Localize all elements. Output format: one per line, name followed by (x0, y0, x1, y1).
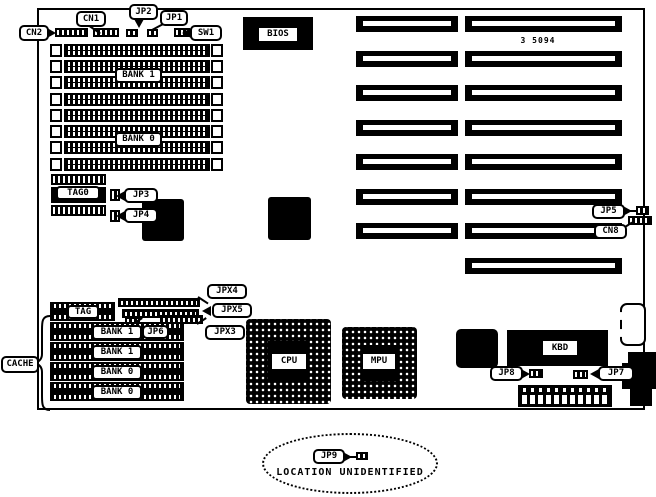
callout-cn2: CN2 (19, 25, 49, 41)
tag0-text: TAG0 (67, 189, 89, 198)
callout-jp2-label: JP2 (135, 8, 151, 17)
cn2-connector (55, 28, 88, 37)
simm-bank0-text: BANK 0 (122, 135, 155, 144)
expansion-slot-short (356, 189, 458, 205)
simm-clip (50, 141, 62, 154)
callout-jp5: JP5 (592, 204, 625, 219)
simm-clip (50, 158, 62, 171)
callout-cn1-label: CN1 (83, 15, 99, 24)
callout-jp7: JP7 (598, 366, 634, 381)
expansion-slot-long (465, 85, 622, 101)
callout-cn8-label: CN8 (602, 227, 618, 236)
callout-jp9-label: JP9 (321, 452, 337, 461)
callout-sw1: SW1 (190, 25, 222, 41)
motherboard-diagram: CN2 CN1 JP2 JP1 SW1 BANK 1 BANK 0 BIOS 3… (0, 0, 656, 497)
simm-clip (50, 60, 62, 73)
callout-cn1: CN1 (76, 11, 106, 27)
jp5-jumper (636, 206, 649, 215)
simm-socket (64, 93, 210, 106)
expansion-slot-long (465, 16, 622, 32)
cache-bank0-label-2: BANK 0 (92, 385, 142, 400)
callout-jpx4: JPX4 (207, 284, 247, 299)
callout-cache-label: CACHE (6, 360, 33, 369)
tag0-label: TAG0 (56, 186, 100, 200)
kbd-text: KBD (552, 344, 568, 353)
simm-clip (211, 93, 223, 106)
callout-sw1-label: SW1 (198, 29, 214, 38)
expansion-slot-short (356, 120, 458, 136)
jp9-jumper (356, 452, 368, 460)
callout-jp2: JP2 (129, 4, 158, 20)
simm-clip (211, 158, 223, 171)
expansion-slot-short (356, 85, 458, 101)
callout-jp4-label: JP4 (133, 211, 149, 220)
din-notch (617, 312, 625, 320)
expansion-slot-long (465, 258, 622, 274)
simm-bank0-label: BANK 0 (115, 132, 162, 147)
cache-tag-label: TAG (67, 305, 99, 319)
callout-jpx3: JPX3 (205, 325, 245, 340)
simm-clip (211, 76, 223, 89)
expansion-slot-short (356, 223, 458, 239)
asic-chip-center (268, 197, 311, 240)
simm-clip (211, 60, 223, 73)
simm-clip (211, 44, 223, 57)
mpu-text: MPU (371, 357, 387, 366)
expansion-slot-long (465, 120, 622, 136)
callout-jp6-label: JP6 (147, 328, 163, 337)
simm-socket (64, 109, 210, 122)
simm-bank1-text: BANK 1 (122, 71, 155, 80)
cache-bank1-label-1: BANK 1 (92, 325, 142, 340)
simm-clip (211, 141, 223, 154)
expansion-slot-short (356, 51, 458, 67)
jp2-jumper (126, 29, 138, 37)
callout-jp7-label: JP7 (608, 369, 624, 378)
jpx5-pointer (202, 306, 211, 316)
expansion-slot-long (465, 154, 622, 170)
simm-clip (50, 76, 62, 89)
expansion-slot-long (465, 189, 622, 205)
callout-jp9: JP9 (313, 449, 345, 464)
jpx4-header (118, 298, 200, 307)
simm-clip (211, 109, 223, 122)
kbd-label: KBD (543, 341, 577, 355)
callout-jp1-label: JP1 (166, 14, 182, 23)
callout-jp3: JP3 (124, 188, 158, 203)
cache-tag-text: TAG (75, 308, 91, 317)
din-connector-outline (620, 303, 646, 346)
expansion-slot-short (356, 154, 458, 170)
cpu-label: CPU (272, 354, 306, 369)
simm-socket (64, 158, 210, 171)
callout-cn2-label: CN2 (26, 29, 42, 38)
callout-jpx5: JPX5 (212, 303, 252, 318)
cache-bank1-label-2: BANK 1 (92, 345, 142, 360)
simm-clip (50, 109, 62, 122)
callout-jp8-label: JP8 (498, 369, 514, 378)
mpu-label: MPU (363, 354, 395, 369)
cpu-text: CPU (281, 357, 297, 366)
callout-jpx3-label: JPX3 (214, 328, 236, 337)
note-ellipse (262, 433, 438, 494)
bios-text: BIOS (267, 30, 289, 39)
callout-cache: CACHE (1, 356, 39, 373)
power-connector (518, 385, 612, 407)
jp7-jumper (573, 370, 588, 379)
callout-jp8: JP8 (490, 366, 523, 381)
callout-jp6: JP6 (142, 325, 169, 339)
simm-clip (50, 125, 62, 138)
simm-clip (211, 125, 223, 138)
expansion-slot-short (356, 16, 458, 32)
simm-socket (64, 44, 210, 57)
callout-jp5-label: JP5 (600, 207, 616, 216)
keyboard-connector (630, 389, 652, 406)
callout-cn8: CN8 (594, 224, 627, 239)
note-text: LOCATION UNIDENTIFIED (268, 468, 432, 478)
callout-jp4: JP4 (124, 208, 158, 223)
expansion-slot-long (465, 51, 622, 67)
chip-near-kbd (456, 329, 498, 368)
jp8-jumper (529, 369, 543, 378)
cache-bank0-label-1: BANK 0 (92, 365, 142, 380)
part-number: 3 5094 (516, 37, 560, 45)
keyboard-connector (628, 352, 656, 363)
callout-jpx4-label: JPX4 (216, 287, 238, 296)
simm-clip (50, 44, 62, 57)
tag0-pins-top (51, 174, 106, 185)
simm-bank1-label: BANK 1 (115, 68, 162, 83)
callout-jp3-label: JP3 (133, 191, 149, 200)
tag0-pins-bottom (51, 205, 106, 216)
simm-clip (50, 93, 62, 106)
din-notch (617, 329, 625, 337)
callout-jp1: JP1 (160, 10, 188, 26)
jp2-pointer (134, 19, 144, 28)
callout-jpx5-label: JPX5 (221, 306, 243, 315)
bios-label: BIOS (259, 28, 297, 41)
